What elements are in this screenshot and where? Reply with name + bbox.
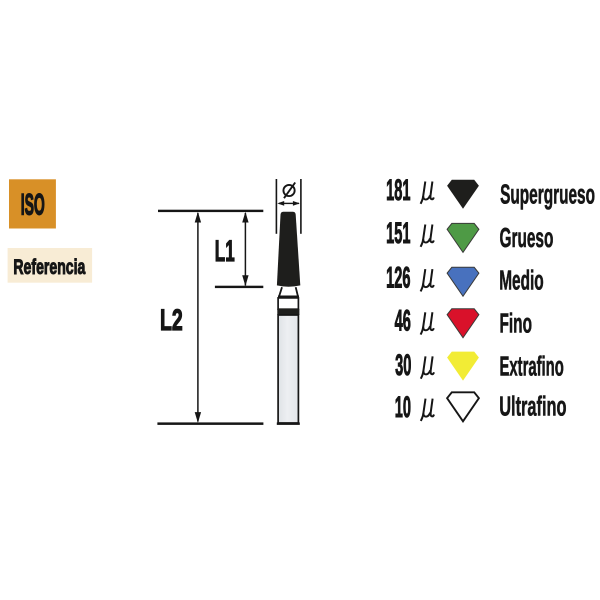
svg-text:L2: L2 xyxy=(160,304,183,337)
svg-text:181: 181 xyxy=(386,173,410,206)
svg-text:Medio: Medio xyxy=(499,265,543,296)
svg-text:46: 46 xyxy=(395,304,411,337)
svg-text:ISO: ISO xyxy=(21,188,45,221)
svg-text:Extrafino: Extrafino xyxy=(500,351,564,382)
svg-text:151: 151 xyxy=(386,216,410,249)
svg-text:Grueso: Grueso xyxy=(500,222,554,253)
svg-text:Supergrueso: Supergrueso xyxy=(500,179,595,210)
svg-text:10: 10 xyxy=(395,390,411,423)
svg-text:Referencia: Referencia xyxy=(13,255,86,279)
svg-text:30: 30 xyxy=(395,348,411,381)
svg-text:L1: L1 xyxy=(215,235,235,268)
svg-text:Fino: Fino xyxy=(500,308,532,339)
svg-text:126: 126 xyxy=(386,261,410,294)
svg-text:Ultrafino: Ultrafino xyxy=(499,390,566,422)
